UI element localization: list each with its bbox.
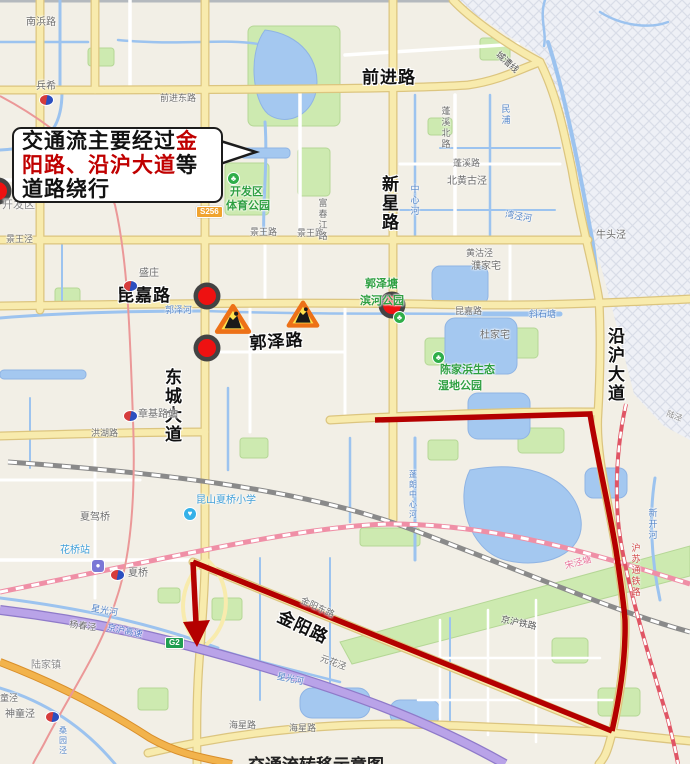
bottom-caption-clipped: 交通流转移示意图 bbox=[248, 751, 384, 764]
traffic-detour-map: 前进路新星路昆嘉路郭泽路东城大道沿沪大道金阳路南浜路兵希盛庄开发区景王泾前进东路… bbox=[0, 0, 690, 764]
road-closure-marker bbox=[194, 335, 221, 362]
callout-line2-black: 等 bbox=[176, 154, 198, 177]
map-background bbox=[0, 0, 690, 764]
callout-line1-red: 金 bbox=[176, 130, 198, 153]
callout-line3-black: 道路绕行 bbox=[22, 178, 110, 201]
road-closure-marker bbox=[194, 283, 221, 310]
callout-annotation: 交通流主要经过金阳路、沿沪大道等道路绕行 bbox=[12, 127, 223, 203]
callout-line2-red: 阳路、沿沪大道 bbox=[22, 154, 176, 177]
road-closure-marker bbox=[379, 292, 406, 319]
callout-line1-black: 交通流主要经过 bbox=[22, 130, 176, 153]
detour-route-arrow-stem bbox=[193, 562, 196, 624]
